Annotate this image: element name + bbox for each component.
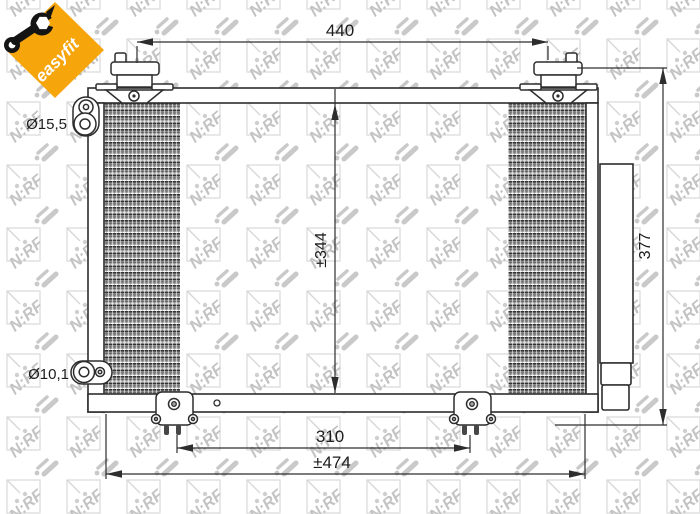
arrow-left-icon [137,38,153,46]
mount-bracket-bottom-left [152,392,198,435]
screw-icon [132,94,135,97]
label-port-top-diameter: Ø15,5 [26,116,67,133]
bracket-pin [164,425,169,435]
arrow-down-icon [659,409,666,425]
condenser-frame [88,88,598,412]
arrow-left-icon [177,444,193,452]
arrow-left-icon [106,470,122,478]
screw-icon [471,403,473,405]
dim-value-474: ±474 [313,453,351,472]
dim-value-344: ±344 [313,232,330,268]
dimension-bottom-310: 310 [177,427,470,453]
arrow-right-icon [569,470,585,478]
bracket-pin [462,425,467,435]
bracket-pin [176,425,181,435]
dim-value-377: 377 [637,233,654,260]
dimension-core-344: ±344 [313,89,339,393]
arrow-right-icon [532,38,548,46]
screw-icon [173,403,175,405]
side-tank-right [586,103,598,412]
bracket-pin [474,425,479,435]
arrow-right-icon [454,444,470,452]
label-port-bottom-diameter: Ø10,1 [28,366,69,383]
bottom-header-hole [214,400,220,406]
condenser-technical-drawing: N:RF [0,0,700,514]
arrow-down-icon [331,377,338,393]
dim-value-310: 310 [316,427,344,446]
arrow-up-icon [331,104,338,120]
dimension-top-440: 440 [137,21,548,63]
arrow-up-icon [659,68,666,84]
mount-bracket-bottom-right [450,392,496,435]
dim-value-440: 440 [326,21,354,40]
port-fitting-bottom [71,361,112,384]
screw-icon [556,94,559,97]
easyfit-badge: easyfit [0,0,112,106]
receiver-drier [600,164,633,410]
